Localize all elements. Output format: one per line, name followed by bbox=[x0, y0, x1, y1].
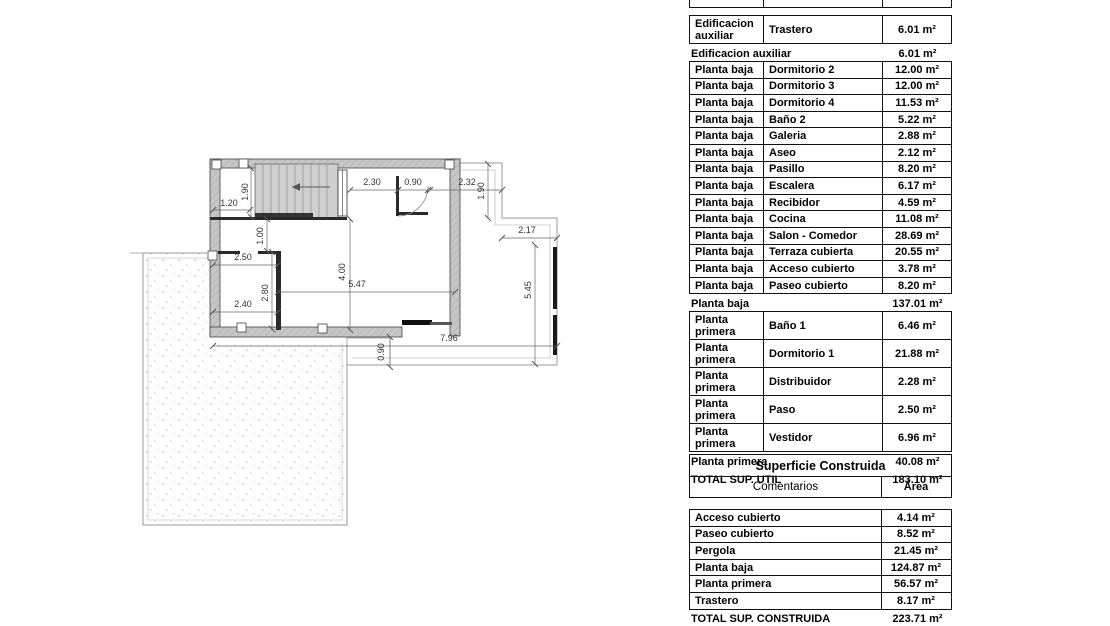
floor-plan: 1.201.902.300.902.321.902.175.452.501.00… bbox=[0, 0, 660, 626]
room-cell: Dormitorio 4 bbox=[763, 95, 882, 111]
area-cell: 6.01 m² bbox=[882, 16, 951, 43]
built-table-col-comments: Comentarios bbox=[690, 477, 881, 497]
area-cell: 21.45 m² bbox=[881, 543, 950, 559]
built-table-header: Superficie Construida Comentarios Área bbox=[689, 454, 952, 498]
table-row: Planta bajaRecibidor4.59 m² bbox=[689, 194, 952, 212]
table-row: Planta primeraBaño 16.46 m² bbox=[689, 311, 952, 340]
table-row: Planta primeraDistribuidor2.28 m² bbox=[689, 367, 952, 396]
area-cell: 2.12 m² bbox=[882, 145, 951, 161]
table-partial-row bbox=[689, 0, 952, 8]
area-cell: 8.52 m² bbox=[881, 527, 950, 543]
window-icon bbox=[338, 170, 347, 216]
room-cell: Aseo bbox=[763, 145, 882, 161]
room-cell: Paso bbox=[763, 396, 882, 423]
dim-label-dim-terrace-top-width: 2.32 bbox=[458, 177, 476, 187]
dim-label-dim-hall-height: 4.00 bbox=[337, 263, 347, 281]
floor-cell: Planta baja bbox=[690, 112, 763, 127]
area-cell: 28.69 m² bbox=[882, 228, 951, 244]
table-row: Planta bajaCocina11.08 m² bbox=[689, 210, 952, 228]
built-area-table: Acceso cubierto4.14 m²Paseo cubierto8.52… bbox=[689, 510, 952, 626]
subtotal-label: Edificacion auxiliar bbox=[689, 48, 883, 60]
table-row: Trastero8.17 m² bbox=[689, 592, 952, 610]
subtotal-area: 6.01 m² bbox=[883, 48, 952, 60]
area-cell: 20.55 m² bbox=[882, 245, 951, 261]
dim-label-dim-hall-width: 5.47 bbox=[348, 279, 366, 289]
area-cell: 12.00 m² bbox=[882, 79, 951, 95]
floor-cell: Planta primera bbox=[690, 312, 763, 339]
table-row: Planta primeraPaso2.50 m² bbox=[689, 395, 952, 424]
subtotal-row: Edificacion auxiliar6.01 m² bbox=[689, 45, 952, 62]
comment-cell: Trastero bbox=[690, 593, 881, 608]
subtotal-label: Planta baja bbox=[689, 298, 883, 310]
subtotal-row: Planta baja137.01 m² bbox=[689, 295, 952, 312]
dim-label-dim-building-width: 7.96 bbox=[440, 333, 458, 343]
room-cell: Distribuidor bbox=[763, 368, 882, 395]
comment-cell: Planta primera bbox=[690, 577, 881, 592]
area-cell: 11.53 m² bbox=[882, 95, 951, 111]
area-cell: 21.88 m² bbox=[882, 340, 951, 367]
room-cell: Dormitorio 2 bbox=[763, 62, 882, 78]
floor-cell: Edificacion auxiliar bbox=[690, 16, 763, 43]
table-row: Planta bajaPasillo8.20 m² bbox=[689, 161, 952, 179]
area-cell: 5.22 m² bbox=[882, 112, 951, 128]
floor-cell: Planta baja bbox=[690, 129, 763, 144]
room-cell: Paseo cubierto bbox=[763, 278, 882, 294]
area-cell: 4.59 m² bbox=[882, 195, 951, 211]
stair bbox=[255, 164, 338, 218]
built-table-title: Superficie Construida bbox=[690, 455, 951, 477]
room-cell: Dormitorio 3 bbox=[763, 79, 882, 95]
area-cell: 6.46 m² bbox=[882, 312, 951, 339]
dim-label-dim-walk-step: 0.90 bbox=[376, 343, 386, 361]
table-row: Planta bajaDormitorio 411.53 m² bbox=[689, 94, 952, 112]
total-label: TOTAL SUP. CONSTRUIDA bbox=[689, 613, 883, 625]
subtotal-area: 137.01 m² bbox=[883, 298, 952, 310]
useful-area-table: Edificacion auxiliarTrastero6.01 m²Edifi… bbox=[689, 16, 952, 488]
comment-cell: Acceso cubierto bbox=[690, 510, 881, 525]
dim-label-dim-entry-width: 0.90 bbox=[404, 177, 422, 187]
room-cell: Salon - Comedor bbox=[763, 228, 882, 244]
floor-cell: Planta baja bbox=[690, 95, 763, 110]
table-row: Planta bajaDormitorio 312.00 m² bbox=[689, 78, 952, 96]
area-cell: 8.20 m² bbox=[882, 162, 951, 178]
table-row: Edificacion auxiliarTrastero6.01 m² bbox=[689, 15, 952, 44]
area-cell: 3.78 m² bbox=[882, 261, 951, 277]
total-row: TOTAL SUP. CONSTRUIDA223.71 m² bbox=[689, 611, 952, 626]
table-row: Planta primeraVestidor6.96 m² bbox=[689, 423, 952, 452]
table-row: Planta primera56.57 m² bbox=[689, 575, 952, 593]
plan-svg bbox=[0, 0, 660, 626]
dim-label-dim-stair-height: 1.90 bbox=[240, 183, 250, 201]
built-table-col-area: Área bbox=[881, 477, 950, 497]
total-area: 223.71 m² bbox=[883, 613, 952, 625]
area-cell: 6.17 m² bbox=[882, 178, 951, 194]
floor-cell: Planta baja bbox=[690, 62, 763, 77]
floor-cell: Planta baja bbox=[690, 212, 763, 227]
floor-cell: Planta baja bbox=[690, 145, 763, 160]
floor-cell: Planta primera bbox=[690, 396, 763, 423]
table-row: Planta bajaBaño 25.22 m² bbox=[689, 111, 952, 129]
table-row: Planta baja124.87 m² bbox=[689, 559, 952, 577]
room-cell: Vestidor bbox=[763, 424, 882, 451]
table-row: Paseo cubierto8.52 m² bbox=[689, 526, 952, 544]
table-row: Planta bajaPaseo cubierto8.20 m² bbox=[689, 277, 952, 295]
area-cell: 6.96 m² bbox=[882, 424, 951, 451]
dim-label-dim-room-bottom-width: 2.40 bbox=[234, 299, 252, 309]
floor-cell: Planta baja bbox=[690, 278, 763, 293]
dim-label-dim-terrace-step-height: 1.90 bbox=[476, 182, 486, 200]
table-row: Planta bajaAseo2.12 m² bbox=[689, 144, 952, 162]
area-cell: 12.00 m² bbox=[882, 62, 951, 78]
floor-cell: Planta baja bbox=[690, 162, 763, 177]
room-cell: Trastero bbox=[763, 16, 882, 43]
floor-cell: Planta baja bbox=[690, 245, 763, 260]
floor-cell: Planta baja bbox=[690, 178, 763, 193]
area-cell: 124.87 m² bbox=[881, 560, 950, 576]
room-cell: Baño 2 bbox=[763, 112, 882, 128]
drawing-page: 1.201.902.300.902.321.902.175.452.501.00… bbox=[0, 0, 1110, 626]
area-cell: 4.14 m² bbox=[881, 510, 950, 526]
table-row: Acceso cubierto4.14 m² bbox=[689, 509, 952, 527]
area-cell: 56.57 m² bbox=[881, 576, 950, 592]
table-row: Planta bajaDormitorio 212.00 m² bbox=[689, 61, 952, 79]
room-cell: Galeria bbox=[763, 128, 882, 144]
table-row: Planta primeraDormitorio 121.88 m² bbox=[689, 339, 952, 368]
area-cell: 2.88 m² bbox=[882, 128, 951, 144]
dim-label-dim-room-side-height: 2.80 bbox=[260, 284, 270, 302]
table-row: Planta bajaSalon - Comedor28.69 m² bbox=[689, 227, 952, 245]
floor-cell: Planta primera bbox=[690, 368, 763, 395]
floor-cell: Planta primera bbox=[690, 340, 763, 367]
room-cell: Baño 1 bbox=[763, 312, 882, 339]
area-cell: 8.20 m² bbox=[882, 278, 951, 294]
table-row: Planta bajaAcceso cubierto3.78 m² bbox=[689, 260, 952, 278]
dim-label-dim-terrace-mid-width: 2.17 bbox=[518, 225, 536, 235]
dim-label-dim-passage-height: 1.00 bbox=[255, 227, 265, 245]
table-row: Planta bajaEscalera6.17 m² bbox=[689, 177, 952, 195]
room-cell: Terraza cubierta bbox=[763, 245, 882, 261]
area-cell: 2.50 m² bbox=[882, 396, 951, 423]
floor-cell: Planta primera bbox=[690, 424, 763, 451]
area-cell: 2.28 m² bbox=[882, 368, 951, 395]
comment-cell: Paseo cubierto bbox=[690, 527, 881, 542]
floor-cell: Planta baja bbox=[690, 195, 763, 210]
room-cell: Recibidor bbox=[763, 195, 882, 211]
table-row: Pergola21.45 m² bbox=[689, 542, 952, 560]
dim-label-dim-top-mid-width: 2.30 bbox=[363, 177, 381, 187]
comment-cell: Pergola bbox=[690, 543, 881, 558]
room-cell: Pasillo bbox=[763, 162, 882, 178]
room-cell: Cocina bbox=[763, 211, 882, 227]
table-row: Planta bajaTerraza cubierta20.55 m² bbox=[689, 244, 952, 262]
dim-label-dim-terrace-side-height: 5.45 bbox=[523, 281, 533, 299]
area-cell: 11.08 m² bbox=[882, 211, 951, 227]
room-cell: Acceso cubierto bbox=[763, 261, 882, 277]
area-cell: 8.17 m² bbox=[881, 593, 950, 609]
floor-cell: Planta baja bbox=[690, 261, 763, 276]
floor-cell: Planta baja bbox=[690, 228, 763, 243]
floor-cell: Planta baja bbox=[690, 79, 763, 94]
dim-label-dim-room-top-width: 2.50 bbox=[234, 252, 252, 262]
dim-label-dim-top-left-width: 1.20 bbox=[220, 198, 238, 208]
comment-cell: Planta baja bbox=[690, 560, 881, 575]
room-cell: Escalera bbox=[763, 178, 882, 194]
table-row: Planta bajaGaleria2.88 m² bbox=[689, 127, 952, 145]
room-cell: Dormitorio 1 bbox=[763, 340, 882, 367]
